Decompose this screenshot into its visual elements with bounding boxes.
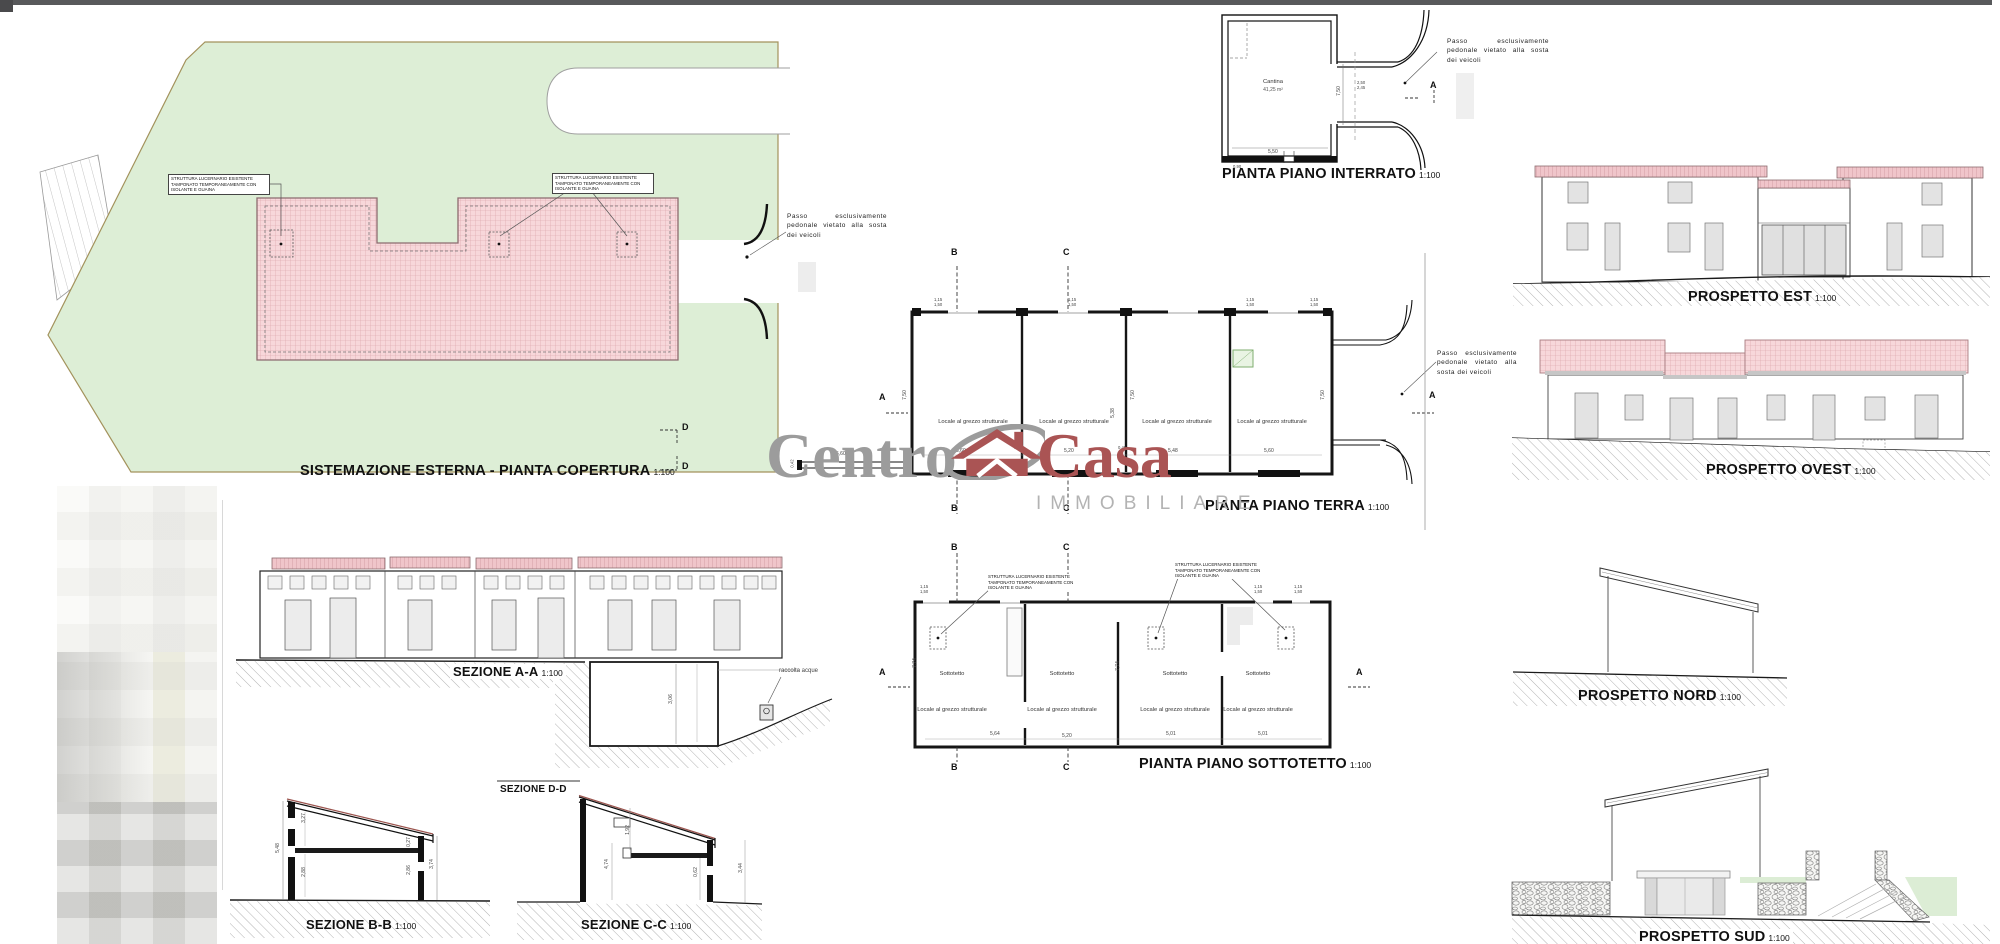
- elevation-west-scale: 1:100: [1854, 466, 1875, 476]
- elevation-south-title: PROSPETTO SUD1:100: [1636, 929, 1793, 944]
- dim-terra-win1-b: 1,50: [934, 302, 942, 307]
- dim-seza-depth: 3,06: [668, 694, 674, 704]
- dim-interrato-door: 0,90: [1233, 164, 1241, 169]
- dim-sezc-i1: 1,92: [625, 825, 631, 835]
- dim-attic-r4: 5,01: [1258, 731, 1268, 737]
- room-sub-attic-4: Locale al grezzo strutturale: [1213, 707, 1303, 713]
- marker-a-terra-left: A: [879, 392, 886, 402]
- dim-terra-win3-b: 1,50: [1246, 302, 1254, 307]
- dim-terra-r4: 5,60: [1264, 448, 1274, 454]
- redacted-block: [57, 486, 217, 944]
- skylight-annotation-site-left: STRUTTURA LUCERNARIO ESISTENTE TAMPONATO…: [168, 174, 270, 195]
- elevation-east-scale: 1:100: [1815, 293, 1836, 303]
- dim-terra-win2-b: 1,50: [1068, 302, 1076, 307]
- section-aa-scale: 1:100: [542, 668, 563, 678]
- dim-interrato-w: 5,50: [1268, 149, 1278, 155]
- marker-b-terra-bottom: B: [951, 503, 958, 513]
- section-cc-title: SEZIONE C-C1:100: [581, 917, 691, 932]
- marker-b-terra-top: B: [951, 247, 958, 257]
- dim-attic-h1: 7,74: [912, 658, 918, 668]
- elevation-west-title-text: PROSPETTO OVEST: [1706, 462, 1851, 478]
- dim-interrato-h: 7,50: [1336, 86, 1342, 96]
- elevation-east-title-text: PROSPETTO EST: [1688, 289, 1812, 305]
- elevation-north-title: PROSPETTO NORD1:100: [1578, 688, 1741, 704]
- elevation-south-title-text: PROSPETTO SUD: [1639, 929, 1765, 944]
- pedestrian-note-site: Passo esclusivamente pedonale vietato al…: [787, 212, 887, 240]
- elevation-east-drawing: [1513, 166, 1990, 306]
- dim-terra-h3: 5,38: [1110, 408, 1116, 418]
- dim-sezb-left: 5,48: [275, 843, 281, 853]
- attic-plan-title-text: PIANTA PIANO SOTTOTETTO: [1139, 756, 1347, 772]
- section-bb-title: SEZIONE B-B1:100: [306, 917, 416, 932]
- dim-attic-h2: 7,74: [1115, 661, 1121, 671]
- house-icon: [949, 424, 1045, 480]
- marker-c-attic-top: C: [1063, 542, 1070, 552]
- dim-sezc-i2: 0,62: [693, 867, 699, 877]
- room-sub-attic-3: Locale al grezzo strutturale: [1130, 707, 1220, 713]
- ground-plan-scale: 1:100: [1368, 502, 1389, 512]
- pedestrian-note-ground: Passo esclusivamente pedonale vietato al…: [1437, 349, 1517, 377]
- basement-plan-title: PIANTA PIANO INTERRATO1:100: [1222, 166, 1440, 182]
- elevation-west-title: PROSPETTO OVEST1:100: [1706, 462, 1876, 478]
- attic-plan-scale: 1:100: [1350, 760, 1371, 770]
- dim-terra-win-4: 1,151,50: [1310, 297, 1318, 308]
- dim-attic-win-2: 1,151,50: [1254, 584, 1262, 595]
- watermark-subtitle: IMMOBILIARE: [1036, 493, 1260, 515]
- section-cc-title-text: SEZIONE C-C: [581, 917, 667, 932]
- elevation-south-scale: 1:100: [1768, 933, 1789, 943]
- marker-a-attic-left: A: [879, 667, 886, 677]
- dim-attic-r1: 5,64: [990, 731, 1000, 737]
- marker-a-terra-right: A: [1429, 390, 1436, 400]
- basement-plan-scale: 1:100: [1419, 170, 1440, 180]
- redacted-segment: [57, 652, 217, 802]
- room-label-attic-1: Sottotetto: [907, 671, 997, 677]
- section-aa-drawing: [236, 557, 832, 768]
- room-label-cantina: Cantina: [1245, 79, 1301, 85]
- room-label-terra-4: Locale al grezzo strutturale: [1227, 419, 1317, 425]
- room-sub-attic-2: Locale al grezzo strutturale: [1017, 707, 1107, 713]
- section-cc-scale: 1:100: [670, 921, 691, 931]
- raccolta-acque-label: raccolta acque: [779, 668, 818, 674]
- dim-terra-win4-b: 1,50: [1310, 302, 1318, 307]
- section-aa-title: SEZIONE A-A1:100: [450, 664, 566, 679]
- elevation-south-drawing: [1512, 769, 1990, 944]
- watermark-word-centro: Centro: [766, 424, 957, 488]
- room-area-cantina: 41,25 m²: [1245, 87, 1301, 93]
- marker-b-attic-bottom: B: [951, 762, 958, 772]
- dim-attic-win3-b: 1,50: [1294, 589, 1302, 594]
- section-aa-title-text: SEZIONE A-A: [453, 664, 539, 679]
- top-left-nub: [0, 0, 13, 12]
- attic-plan-title: PIANTA PIANO SOTTOTETTO1:100: [1139, 756, 1371, 772]
- dim-sezb-right: 3,74: [429, 859, 435, 869]
- marker-a-basement: A: [1430, 80, 1437, 90]
- dim-sezb-i1: 3,27: [301, 813, 307, 823]
- skylight-annotation-attic-left: STRUTTURA LUCERNARIO ESISTENTE TAMPONATO…: [988, 574, 1076, 591]
- dim-sezc-right: 3,44: [738, 863, 744, 873]
- elevation-north-drawing: [1513, 568, 1787, 706]
- site-plan-scale: 1:100: [653, 467, 674, 477]
- dim-sezb-i4: 2,86: [406, 865, 412, 875]
- dim-attic-win1-b: 1,50: [920, 589, 928, 594]
- elevation-north-title-text: PROSPETTO NORD: [1578, 688, 1717, 704]
- dim-interrato-d: 2,502,45: [1357, 80, 1365, 91]
- top-bar: [8, 0, 1992, 5]
- dim-interrato-d2: 2,45: [1357, 85, 1365, 90]
- dim-terra-win-1: 1,151,50: [934, 297, 942, 308]
- marker-d-bottom: D: [682, 461, 689, 471]
- section-bb-title-text: SEZIONE B-B: [306, 917, 392, 932]
- skylight-annotation-site-right: STRUTTURA LUCERNARIO ESISTENTE TAMPONATO…: [552, 173, 654, 194]
- dim-sezb-i3: 0,27: [406, 837, 412, 847]
- elevation-east-title: PROSPETTO EST1:100: [1688, 289, 1836, 305]
- room-label-attic-2: Sottotetto: [1017, 671, 1107, 677]
- dim-terra-h2: 7,50: [1130, 390, 1136, 400]
- site-plan-title: SISTEMAZIONE ESTERNA - PIANTA COPERTURA1…: [300, 463, 675, 479]
- redacted-segment: [57, 802, 217, 944]
- dim-attic-win-3: 1,151,50: [1294, 584, 1302, 595]
- site-plan-title-text: SISTEMAZIONE ESTERNA - PIANTA COPERTURA: [300, 463, 650, 479]
- marker-c-terra-top: C: [1063, 247, 1070, 257]
- marker-a-attic-right: A: [1356, 667, 1363, 677]
- pedestrian-note-basement: Passo esclusivamente pedonale vietato al…: [1447, 37, 1549, 65]
- dim-attic-win2-b: 1,50: [1254, 589, 1262, 594]
- elevation-west-drawing: [1512, 340, 1990, 480]
- dim-terra-win-2: 1,151,50: [1068, 297, 1076, 308]
- dim-attic-r3: 5,01: [1166, 731, 1176, 737]
- redacted-segment: [57, 486, 217, 652]
- section-dd-title-text: SEZIONE D-D: [500, 784, 567, 795]
- drawing-sheet: SISTEMAZIONE ESTERNA - PIANTA COPERTURA1…: [0, 0, 2000, 944]
- dim-terra-h1: 7,50: [902, 390, 908, 400]
- watermark-word-casa: Casa: [1037, 424, 1172, 488]
- dim-terra-h4: 7,50: [1320, 390, 1326, 400]
- room-sub-attic-1: Locale al grezzo strutturale: [907, 707, 997, 713]
- marker-b-attic-top: B: [951, 542, 958, 552]
- watermark-logo: Centro Casa: [766, 424, 1172, 488]
- room-label-attic-3: Sottotetto: [1130, 671, 1220, 677]
- marker-c-attic-bottom: C: [1063, 762, 1070, 772]
- section-bb-scale: 1:100: [395, 921, 416, 931]
- dim-terra-win-3: 1,151,50: [1246, 297, 1254, 308]
- dim-sezb-i2: 2,88: [301, 867, 307, 877]
- marker-d-top: D: [682, 422, 689, 432]
- section-dd-title: SEZIONE D-D: [500, 784, 567, 795]
- elevation-north-scale: 1:100: [1720, 692, 1741, 702]
- basement-plan-title-text: PIANTA PIANO INTERRATO: [1222, 166, 1416, 182]
- dim-sezc-left: 4,74: [604, 859, 610, 869]
- room-label-attic-4: Sottotetto: [1213, 671, 1303, 677]
- redacted-edge-line: [222, 500, 223, 890]
- skylight-annotation-attic-right: STRUTTURA LUCERNARIO ESISTENTE TAMPONATO…: [1175, 562, 1263, 579]
- dim-attic-r2: 5,20: [1062, 733, 1072, 739]
- site-plan-drawing: [40, 42, 816, 472]
- dim-attic-win-1: 1,151,50: [920, 584, 928, 595]
